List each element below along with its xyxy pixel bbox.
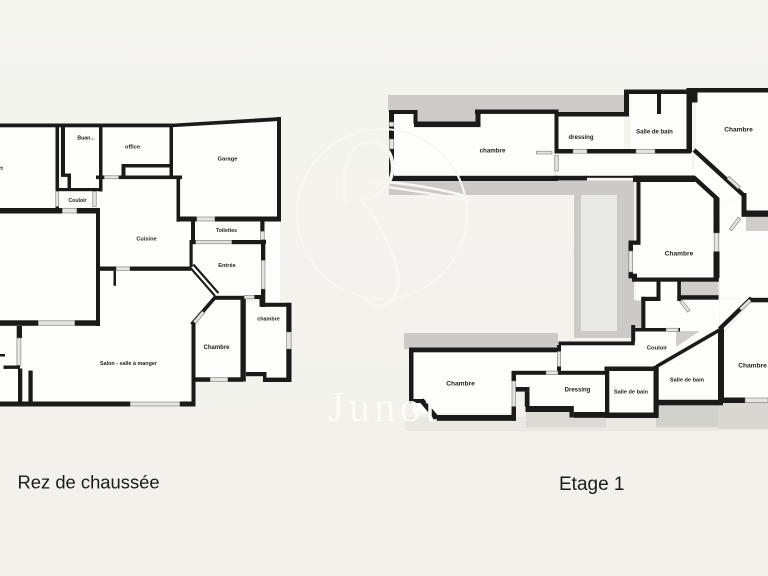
svg-text:Chambre: Chambre bbox=[446, 381, 475, 388]
svg-text:dressing: dressing bbox=[568, 135, 593, 141]
svg-text:chambre: chambre bbox=[257, 317, 279, 323]
svg-text:Salle de bain: Salle de bain bbox=[670, 378, 705, 384]
svg-text:office: office bbox=[125, 145, 140, 151]
svg-text:Etage 1: Etage 1 bbox=[559, 474, 625, 495]
svg-text:Chambre: Chambre bbox=[203, 345, 230, 351]
svg-text:rt: rt bbox=[0, 166, 3, 172]
svg-text:Junot: Junot bbox=[328, 385, 442, 431]
svg-text:Buan...: Buan... bbox=[77, 136, 95, 142]
svg-text:Toilettes: Toilettes bbox=[216, 228, 237, 234]
svg-text:Salle de bain: Salle de bain bbox=[636, 130, 673, 136]
svg-text:Garage: Garage bbox=[218, 157, 239, 163]
svg-text:Chambre: Chambre bbox=[665, 251, 694, 258]
svg-text:Dressing: Dressing bbox=[565, 388, 591, 394]
svg-text:Entrée: Entrée bbox=[218, 263, 235, 269]
svg-text:Cuisine: Cuisine bbox=[136, 237, 156, 243]
svg-text:Rez de chaussée: Rez de chaussée bbox=[18, 472, 160, 493]
svg-text:Chambre: Chambre bbox=[724, 127, 753, 134]
svg-text:chambre: chambre bbox=[480, 148, 506, 155]
svg-text:Couloir: Couloir bbox=[68, 198, 86, 204]
svg-text:Salle de bain: Salle de bain bbox=[614, 390, 649, 396]
svg-text:Salon - salle à manger: Salon - salle à manger bbox=[100, 361, 158, 367]
svg-text:Chambre: Chambre bbox=[738, 363, 767, 370]
svg-text:Couloir: Couloir bbox=[647, 345, 668, 351]
